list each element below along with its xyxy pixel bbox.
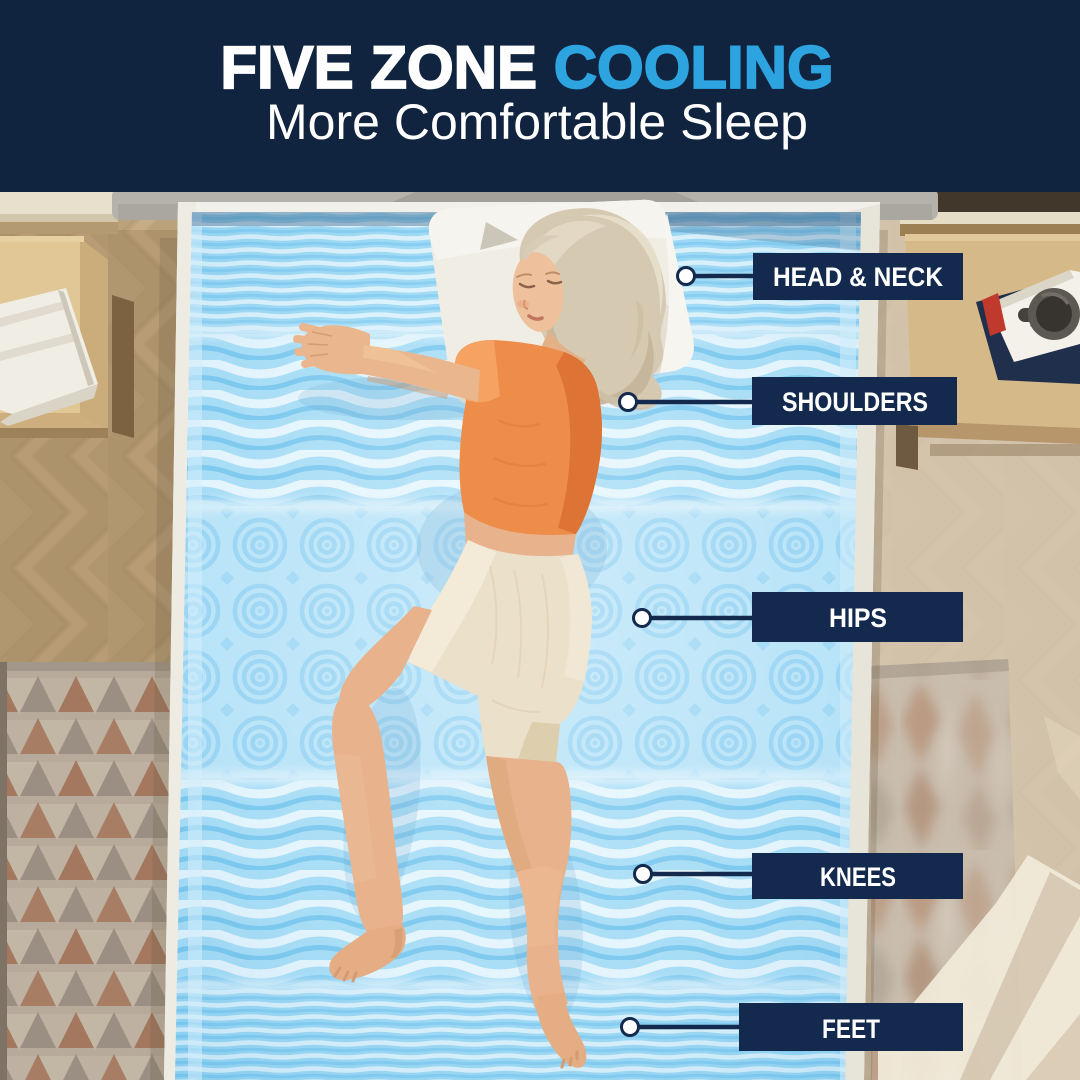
svg-text:FEET: FEET: [822, 1014, 880, 1044]
svg-text:SHOULDERS: SHOULDERS: [782, 387, 928, 417]
svg-text:HIPS: HIPS: [829, 603, 887, 633]
svg-text:HEAD & NECK: HEAD & NECK: [773, 262, 943, 292]
svg-text:KNEES: KNEES: [820, 862, 896, 892]
svg-text:FIVE ZONE COOLING: FIVE ZONE COOLING: [220, 34, 833, 101]
svg-text:More Comfortable Sleep: More Comfortable Sleep: [266, 94, 808, 150]
